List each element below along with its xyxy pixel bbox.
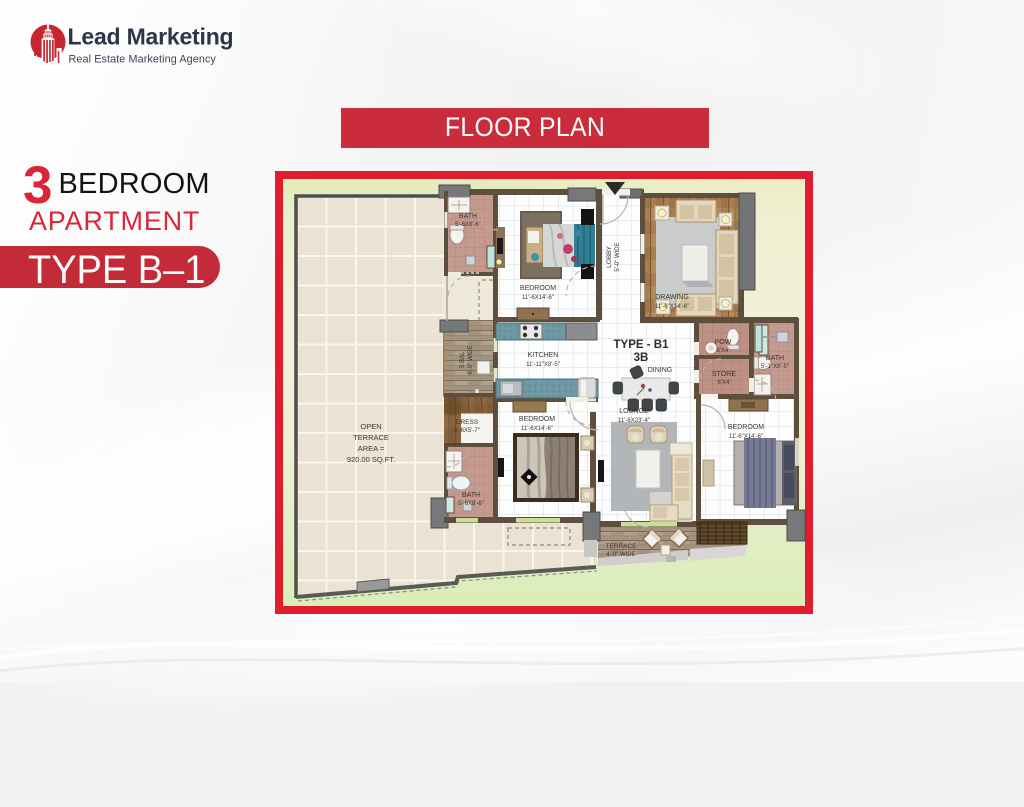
svg-text:11'-6X23'-4": 11'-6X23'-4" xyxy=(618,418,650,424)
svg-text:11'-6"X14'-6": 11'-6"X14'-6" xyxy=(655,304,689,310)
svg-text:11'-6X14'-6": 11'-6X14'-6" xyxy=(521,426,553,432)
svg-text:DRESS: DRESS xyxy=(456,419,479,426)
svg-text:5'-6X8'-6": 5'-6X8'-6" xyxy=(458,501,484,507)
svg-text:POW: POW xyxy=(715,339,732,346)
svg-text:6'X4': 6'X4' xyxy=(717,348,730,354)
svg-text:S BAL: S BAL xyxy=(460,351,466,369)
svg-text:KITCHEN: KITCHEN xyxy=(528,352,559,359)
svg-text:TYPE - B1: TYPE - B1 xyxy=(614,339,670,351)
svg-text:Real Estate Marketing Agency: Real Estate Marketing Agency xyxy=(69,54,217,66)
svg-text:920.00 SQ.FT.: 920.00 SQ.FT. xyxy=(347,455,395,464)
svg-text:DRAWING: DRAWING xyxy=(655,294,689,301)
svg-text:11'-6"X14'-6": 11'-6"X14'-6" xyxy=(729,434,763,440)
svg-text:5'-6X8'-6": 5'-6X8'-6" xyxy=(455,222,481,228)
svg-text:DINING: DINING xyxy=(648,367,673,374)
svg-text:5'-6X5'-7": 5'-6X5'-7" xyxy=(454,428,480,434)
svg-text:Lead Marketing: Lead Marketing xyxy=(68,24,234,50)
svg-text:3B: 3B xyxy=(634,352,649,364)
svg-text:OPEN: OPEN xyxy=(360,422,381,431)
svg-text:5'-1"X8'-5": 5'-1"X8'-5" xyxy=(761,364,789,370)
svg-text:LOUNGE: LOUNGE xyxy=(619,408,649,415)
svg-text:TERRACE: TERRACE xyxy=(353,433,389,442)
svg-text:BEDROOM: BEDROOM xyxy=(728,424,764,431)
svg-text:BEDROOM: BEDROOM xyxy=(520,285,556,292)
svg-text:TERRACE: TERRACE xyxy=(605,543,637,550)
svg-text:4'-0" WIDE: 4'-0" WIDE xyxy=(606,552,635,558)
svg-text:AREA =: AREA = xyxy=(358,444,385,453)
svg-text:6'X4': 6'X4' xyxy=(718,380,731,386)
svg-text:11'-6X14'-6": 11'-6X14'-6" xyxy=(522,295,554,301)
svg-text:BATH: BATH xyxy=(766,355,784,362)
svg-text:BEDROOM: BEDROOM xyxy=(519,416,555,423)
svg-text:BATH: BATH xyxy=(462,492,480,499)
svg-text:5'-0" WIDE: 5'-0" WIDE xyxy=(615,242,621,271)
svg-text:BATH: BATH xyxy=(459,213,477,220)
svg-text:11'-11"X8'-5": 11'-11"X8'-5" xyxy=(526,362,560,368)
svg-text:6'-0" WIDE: 6'-0" WIDE xyxy=(468,345,474,374)
svg-text:LOBBY: LOBBY xyxy=(606,246,613,268)
svg-text:STORE: STORE xyxy=(712,371,736,378)
